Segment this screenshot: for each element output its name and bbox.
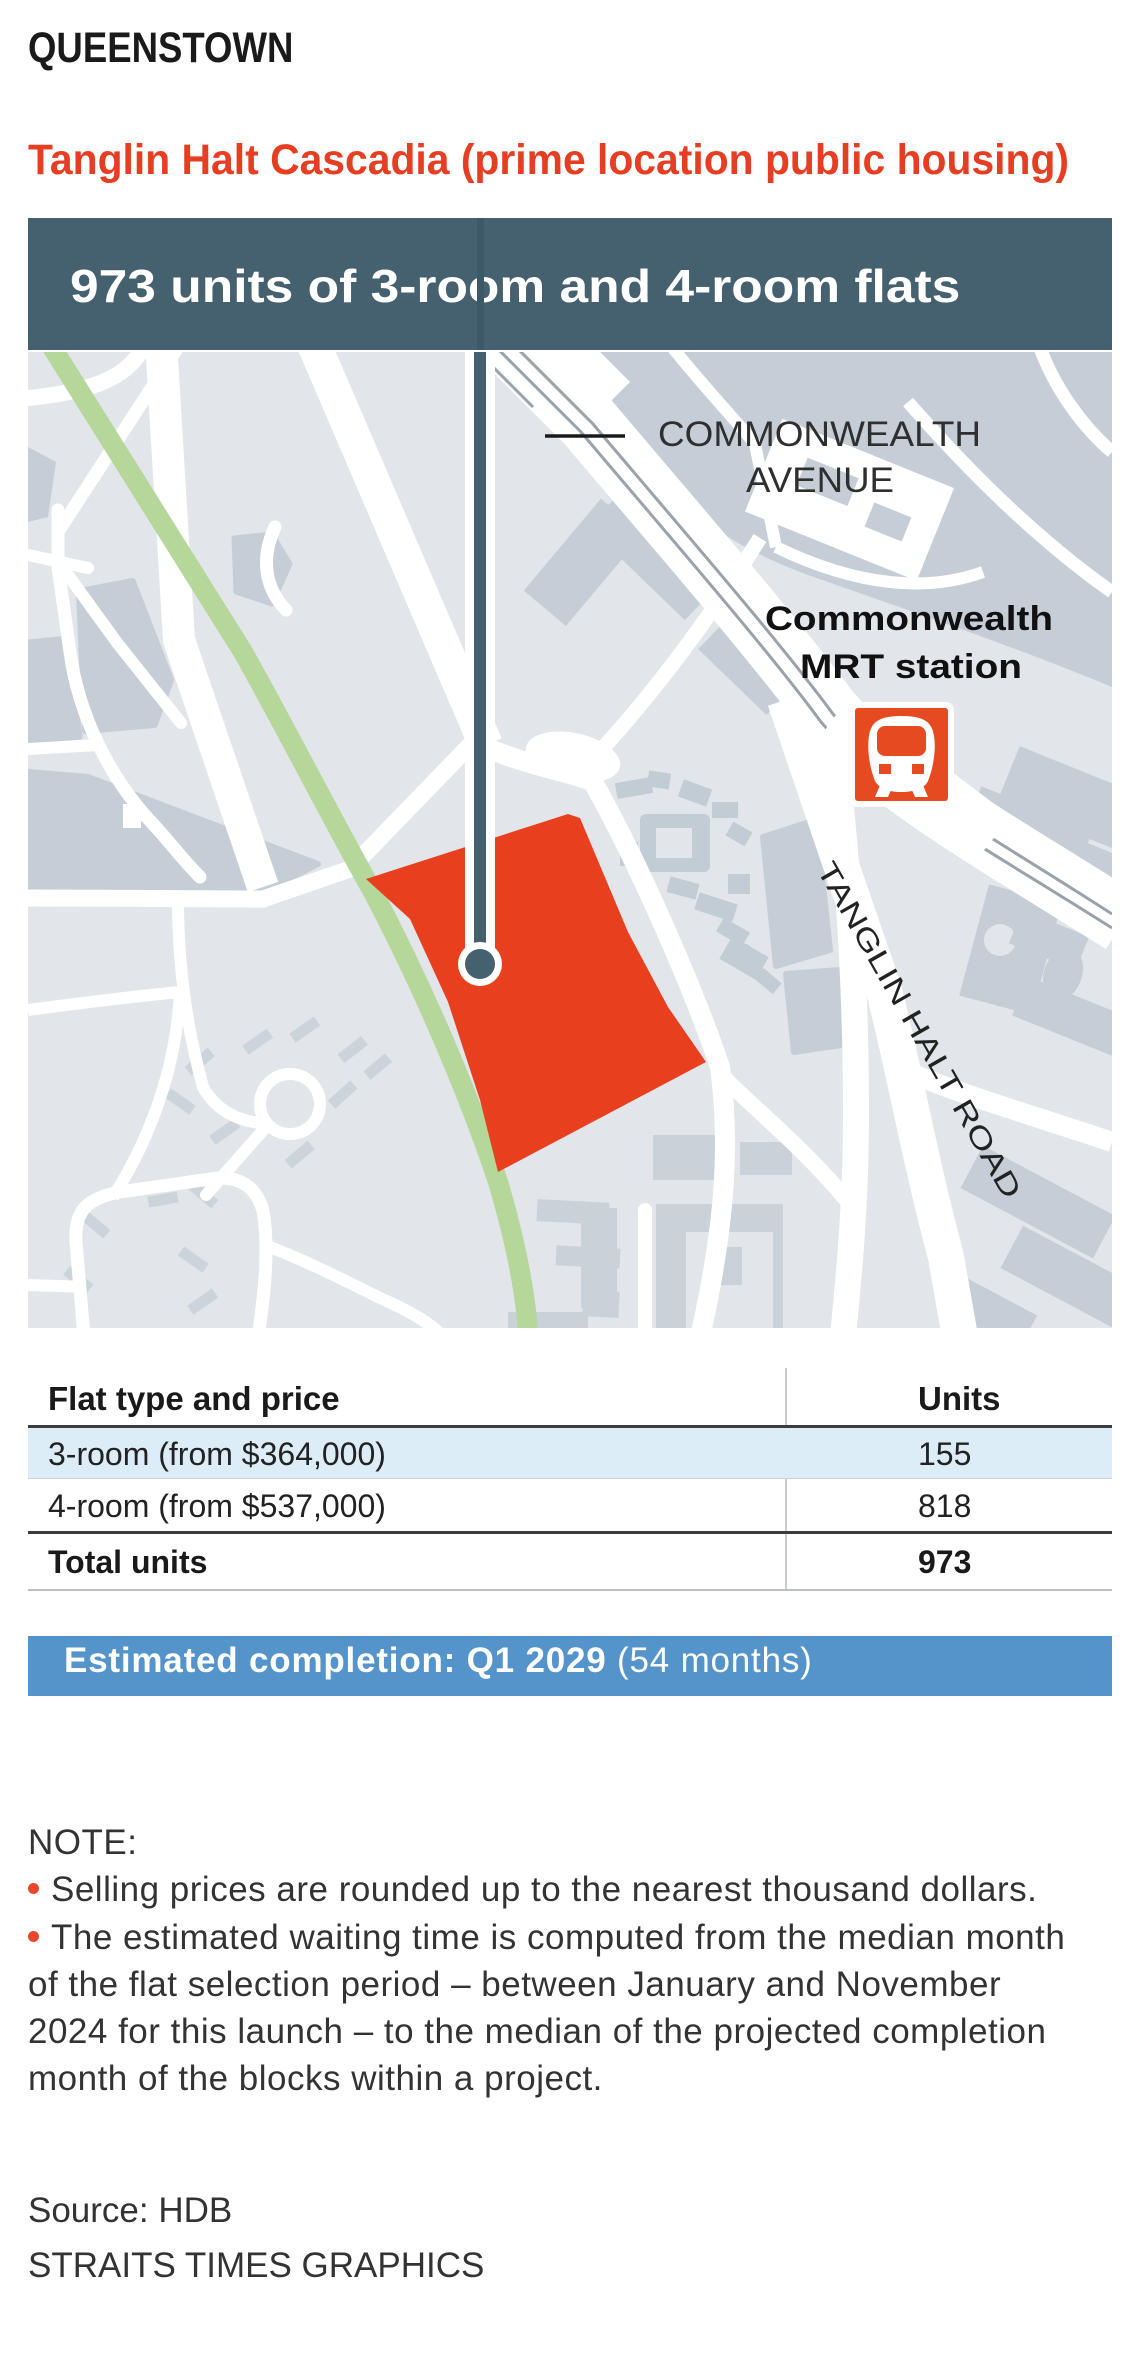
svg-text:COMMONWEALTH: COMMONWEALTH bbox=[658, 415, 981, 454]
svg-text:MRT station: MRT station bbox=[800, 648, 1022, 686]
svg-text:Commonwealth: Commonwealth bbox=[765, 600, 1053, 638]
svg-text:AVENUE: AVENUE bbox=[746, 461, 894, 500]
